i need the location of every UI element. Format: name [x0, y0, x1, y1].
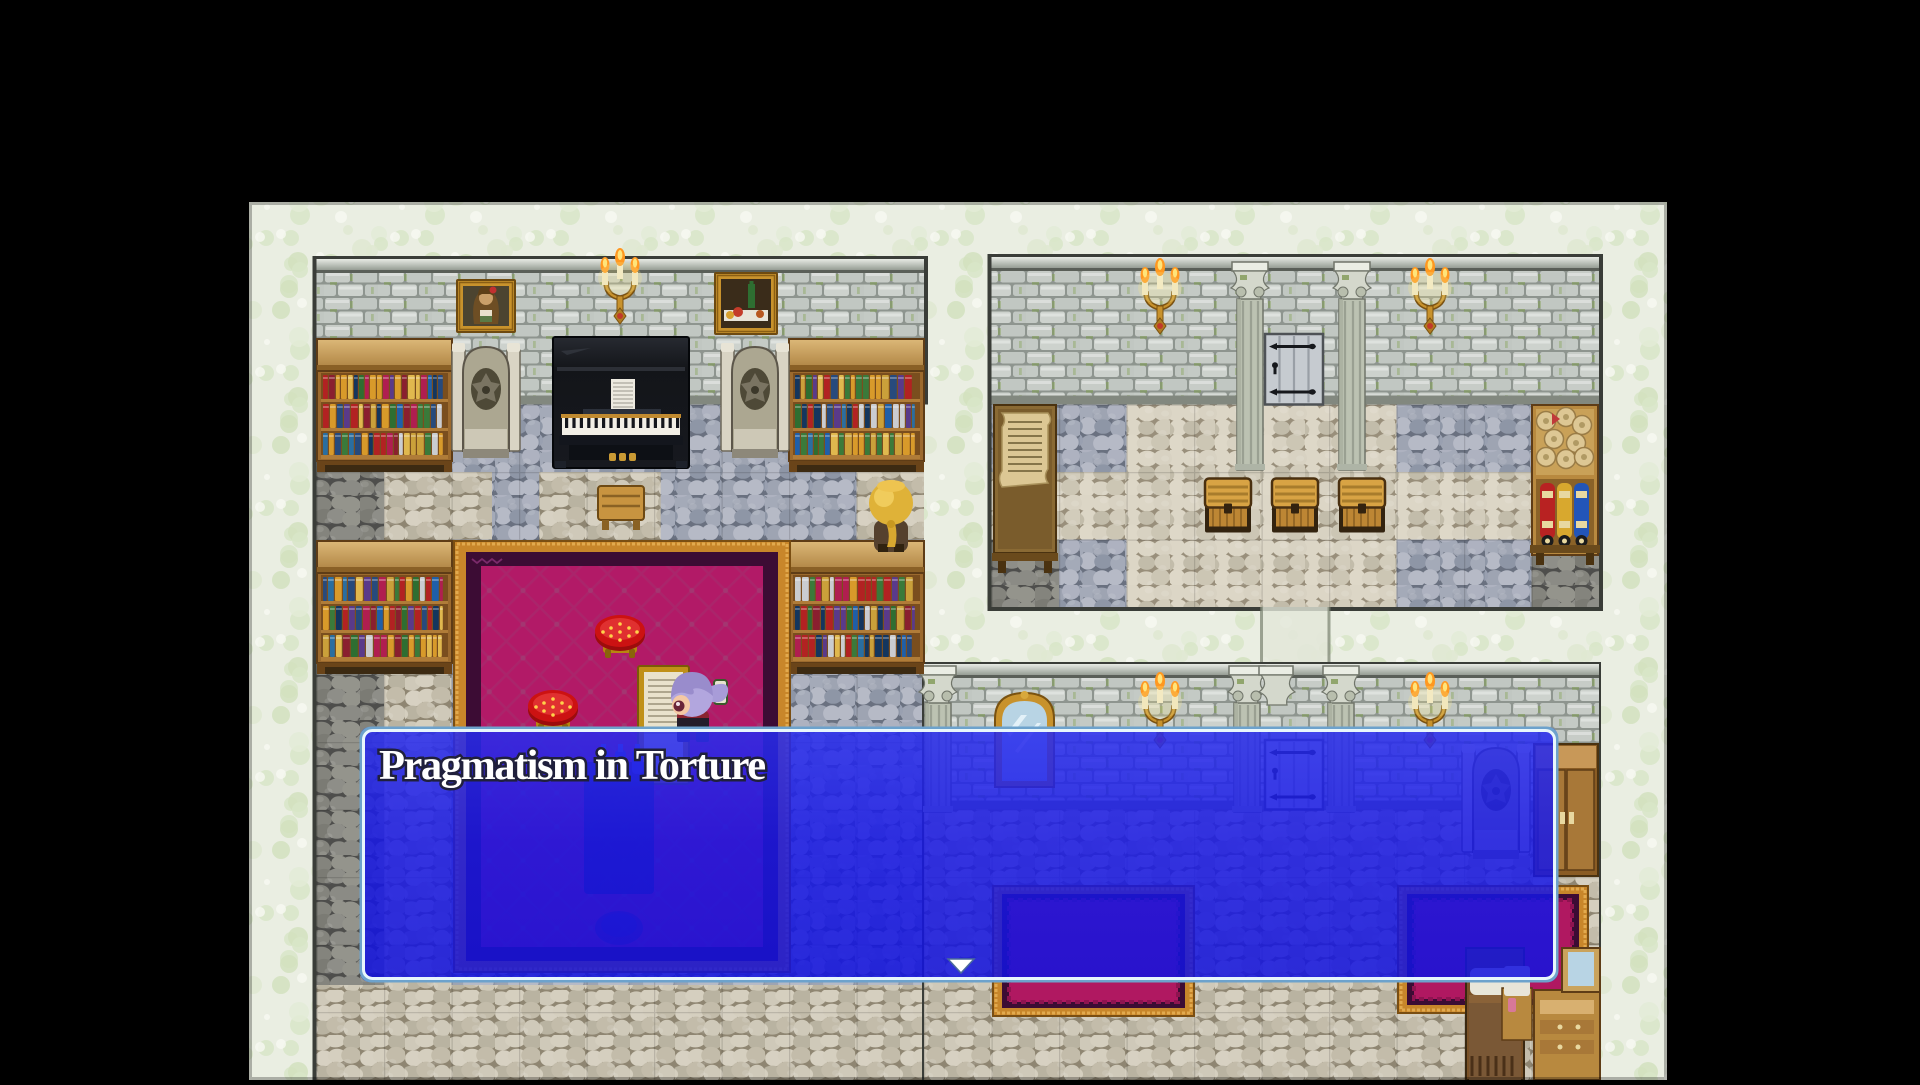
- svg-text:Pragmatism in Torture: Pragmatism in Torture: [379, 742, 765, 789]
